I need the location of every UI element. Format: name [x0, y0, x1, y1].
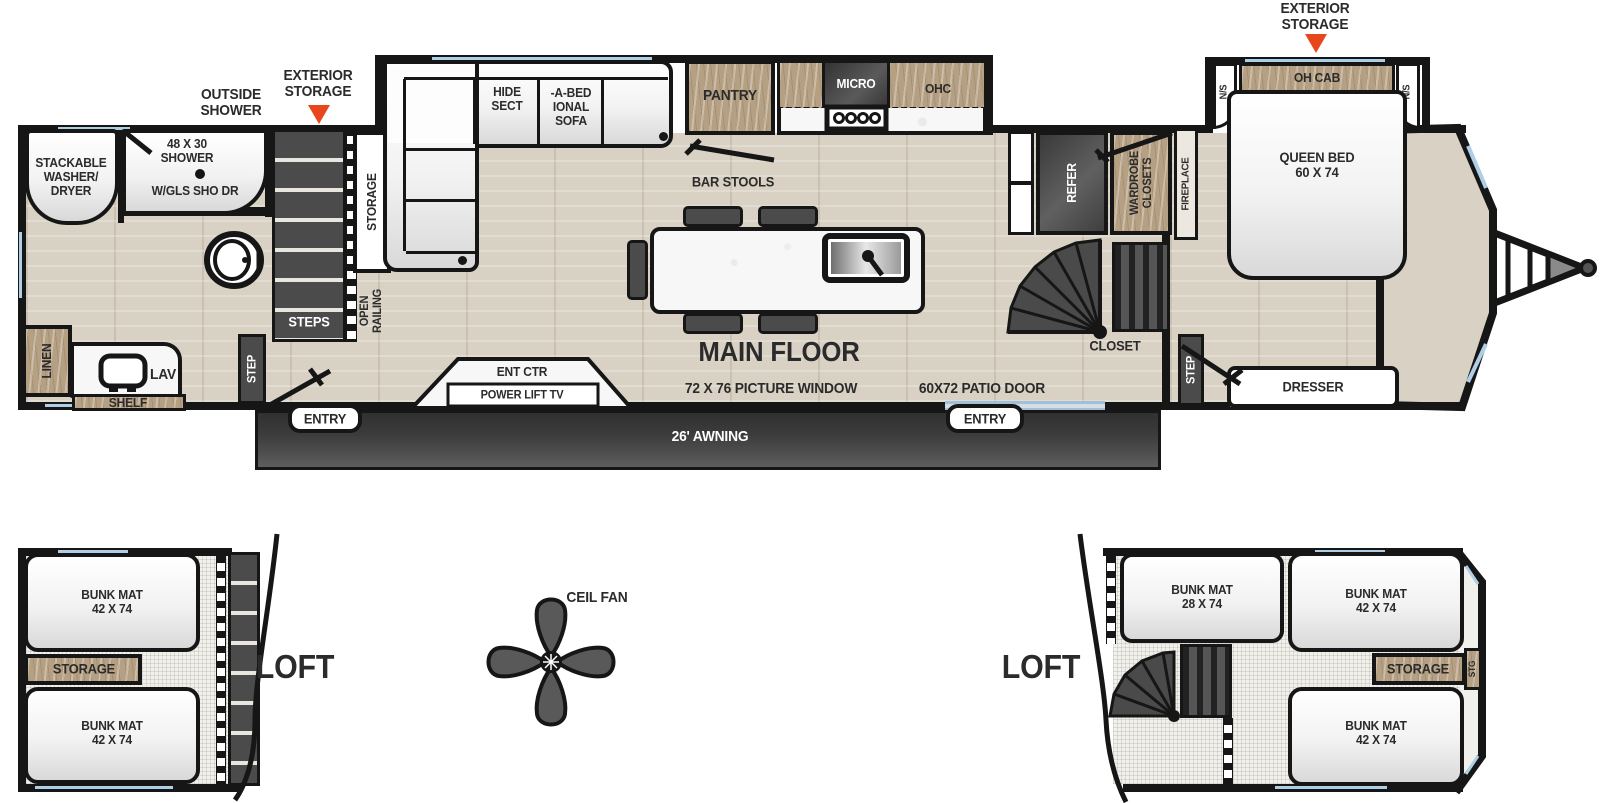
lav-sink-icon: [96, 352, 152, 396]
power-lift-tv-label: POWER LIFT TV: [481, 389, 564, 402]
pantry-door-swing: [684, 138, 780, 166]
queen-bed: [1227, 90, 1407, 280]
oh-cab-label: OH CAB: [1294, 71, 1340, 85]
shower-door-line: [124, 130, 156, 158]
loft-right-stair-treads: [1180, 644, 1232, 718]
toilet-icon: [203, 230, 267, 292]
picture-window-label: 72 X 76 PICTURE WINDOW: [685, 381, 857, 397]
loft-right-window-bottom: [1275, 786, 1387, 789]
ohc-label: OHC: [925, 82, 951, 96]
linen-label: LINEN: [40, 344, 54, 379]
main-floor-label: MAIN FLOOR: [698, 337, 859, 367]
ceiling-fan-icon: [481, 592, 621, 732]
sofa-label-abed: -A-BED IONAL SOFA: [551, 86, 592, 128]
wall-top-right: [1422, 125, 1466, 133]
loft-right-bunk-top-label: BUNK MAT 42 X 74: [1345, 587, 1406, 615]
loft-left-label: LOFT: [256, 649, 335, 685]
sofa-seam-6: [406, 251, 475, 254]
outside-shower-label: OUTSIDE SHOWER: [200, 87, 261, 119]
island-sink-icon: [820, 231, 914, 287]
closet-hanging-area: [1112, 242, 1170, 332]
exterior-storage-left-arrow: [308, 105, 330, 124]
bar-stool-5: [627, 240, 648, 300]
window-left-wall: [19, 232, 22, 298]
step-left-label: STEP: [246, 355, 259, 383]
loft-left-bunk-top-label: BUNK MAT 42 X 74: [81, 588, 142, 616]
bedroom-door-swing: [1176, 340, 1248, 390]
spiral-stairs-main: [1005, 236, 1110, 340]
sofa-label-hide: HIDE SECT: [491, 85, 522, 113]
steps-label: STEPS: [288, 314, 329, 329]
bar-stools-label: BAR STOOLS: [692, 174, 774, 189]
sofa-seam-2: [537, 79, 540, 144]
sofa-seam-3: [601, 79, 604, 144]
shelf-label: SHELF: [109, 396, 147, 410]
bar-stool-2: [758, 206, 818, 227]
loft-right-bunk-bottom-label: BUNK MAT 42 X 74: [1345, 719, 1406, 747]
exterior-storage-right-arrow: [1305, 34, 1327, 53]
wall-slide-left: [375, 55, 383, 133]
refer-label: REFER: [1065, 163, 1079, 203]
ent-ctr-label: ENT CTR: [497, 365, 548, 379]
fireplace-label: FIREPLACE: [1180, 157, 1191, 210]
staircase: [272, 129, 346, 342]
entry-right-label: ENTRY: [964, 411, 1006, 426]
sofa-cupholder-2: [458, 256, 467, 265]
lav-label: LAV: [150, 367, 176, 383]
wall-bedslide-left: [1205, 57, 1213, 133]
loft-left-window-bottom: [35, 786, 173, 789]
dresser-label: DRESSER: [1283, 379, 1344, 394]
loft-right-railing-top: [1106, 556, 1116, 644]
shower-head-dot: [195, 169, 205, 179]
loft-right-label: LOFT: [1002, 649, 1081, 685]
loft-right-stg-label: STG: [1468, 661, 1478, 677]
loft-left-storage-label: STORAGE: [53, 661, 115, 676]
entry-left-label: ENTRY: [304, 411, 346, 426]
washer-dryer-label: STACKABLE WASHER/ DRYER: [35, 156, 106, 198]
loft-left-bunk-bottom-label: BUNK MAT 42 X 74: [81, 719, 142, 747]
pantry-label: PANTRY: [703, 88, 757, 104]
hall-door-swing: [1094, 126, 1178, 164]
cabinet-next-refer: [1008, 131, 1034, 235]
floorplan-diagram: STACKABLE WASHER/ DRYER 48 X 30 SHOWER W…: [0, 0, 1600, 803]
micro-label: MICRO: [837, 77, 876, 91]
sofa-seam-5: [406, 199, 475, 202]
exterior-storage-right-label: EXTERIOR STORAGE: [1280, 1, 1349, 33]
wall-bedslide-right: [1422, 57, 1430, 133]
window-bed-slide: [1245, 59, 1385, 62]
closet-label: CLOSET: [1089, 338, 1140, 353]
stove-icon: [824, 104, 890, 134]
shower-size-label: 48 X 30 SHOWER: [161, 137, 214, 165]
storage-stairs-label: STORAGE: [365, 173, 379, 231]
trailer-nose-and-hitch: [1380, 120, 1600, 415]
sofa-seam-4: [406, 148, 475, 151]
awning-label: 26' AWNING: [672, 429, 749, 445]
loft-right-storage-label: STORAGE: [1387, 661, 1449, 676]
queen-bed-label: QUEEN BED 60 X 74: [1280, 150, 1355, 180]
bar-stool-1: [683, 206, 743, 227]
wall-bedroom-divider-bottom: [1162, 330, 1170, 410]
sofa-cupholder-1: [659, 132, 668, 141]
bar-stool-4: [758, 313, 818, 334]
open-railing-label: OPEN RAILING: [358, 289, 384, 333]
loft-right-bunk-28-label: BUNK MAT 28 X 74: [1171, 583, 1232, 611]
loft-right-spiral-stairs: [1108, 638, 1180, 726]
sofa-seam-1: [473, 79, 476, 144]
exterior-storage-left-label: EXTERIOR STORAGE: [283, 68, 352, 100]
patio-door-label: 60X72 PATIO DOOR: [919, 381, 1045, 397]
sofa-seam-chaise: [403, 79, 406, 251]
bar-stool-3: [683, 313, 743, 334]
loft-right-railing-bottom: [1223, 718, 1233, 784]
shower-door-label: W/GLS SHO DR: [152, 184, 239, 198]
sofa-seam-back: [404, 77, 668, 80]
